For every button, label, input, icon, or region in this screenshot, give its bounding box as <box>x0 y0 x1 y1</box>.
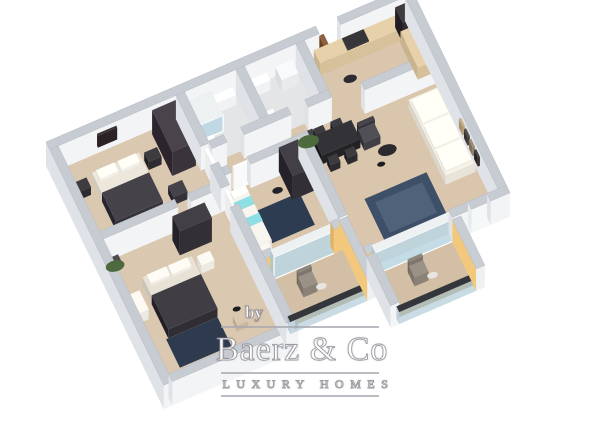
watermark-rule-top <box>221 326 379 328</box>
watermark-tagline: LUXURY HOMES <box>216 377 384 392</box>
watermark-by: by <box>170 303 338 323</box>
watermark-rule-bottom <box>221 395 379 397</box>
watermark-rule-middle <box>221 372 379 374</box>
real-estate-3d-floorplan: by Baerz & Co LUXURY HOMES <box>0 0 600 426</box>
watermark: by Baerz & Co LUXURY HOMES <box>216 303 384 400</box>
watermark-brand: Baerz & Co <box>216 331 384 369</box>
